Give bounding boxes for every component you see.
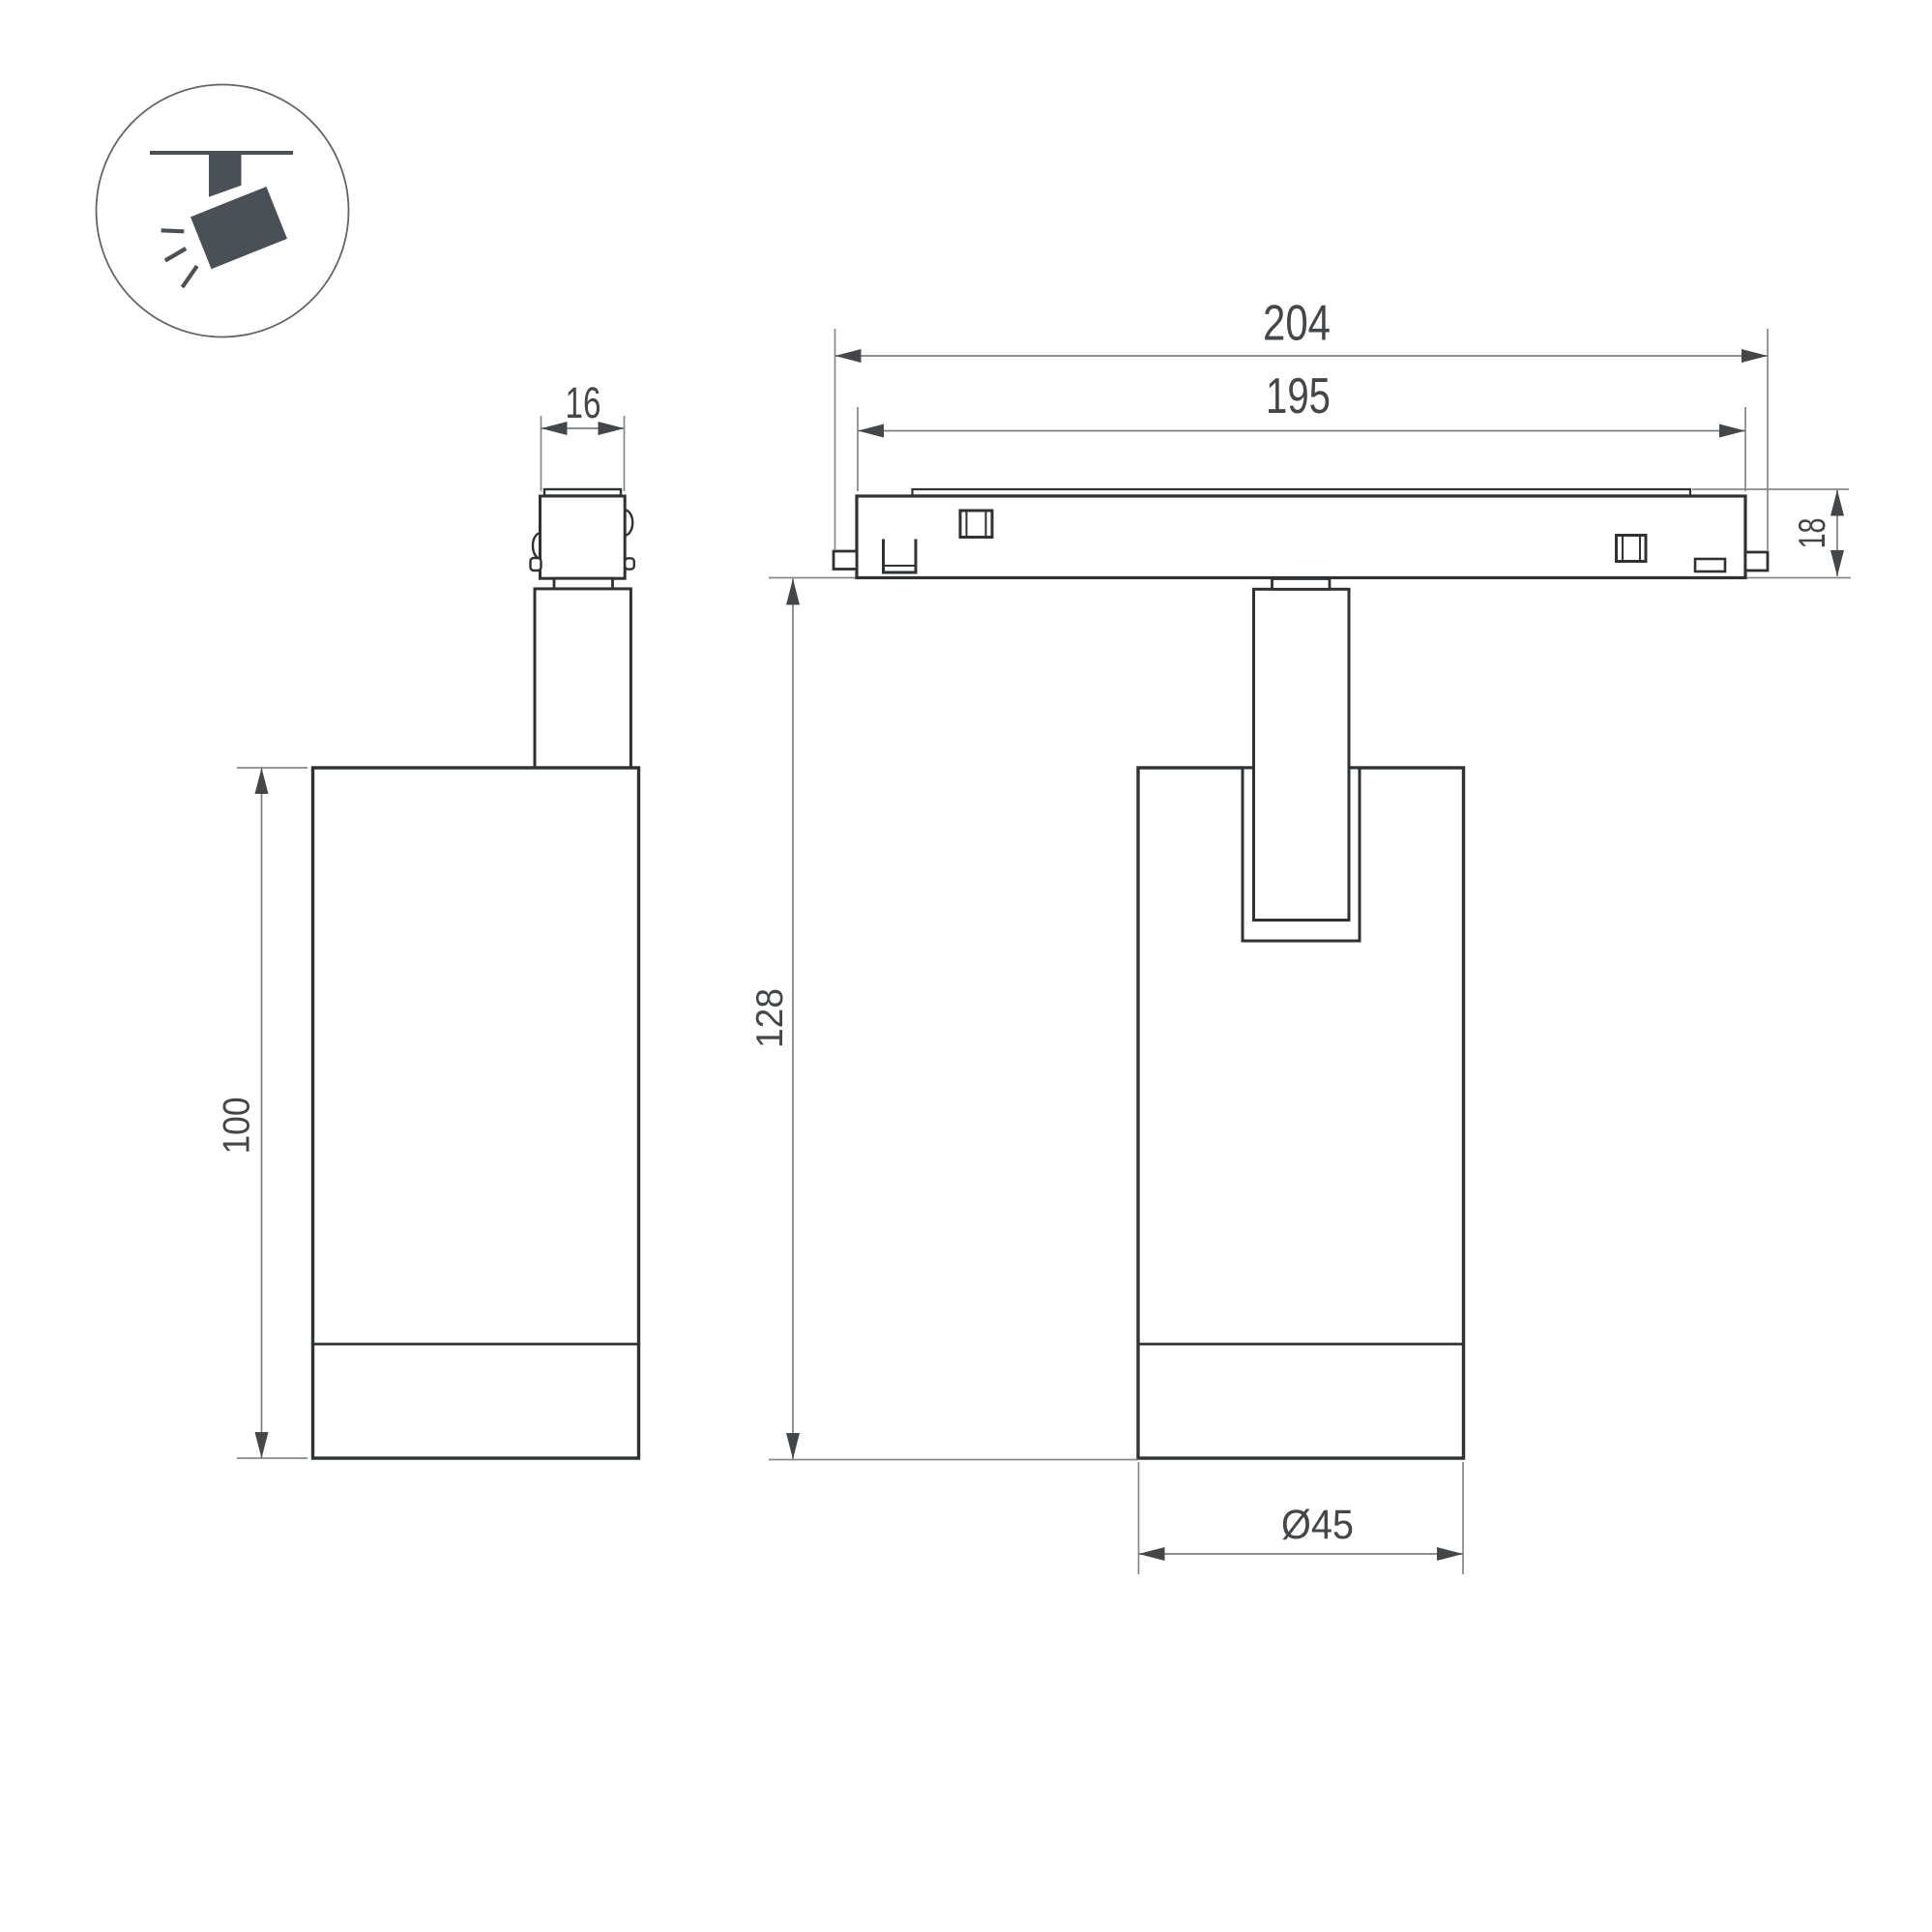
svg-text:195: 195 [1266, 368, 1331, 424]
svg-text:204: 204 [1263, 296, 1331, 352]
svg-text:18: 18 [1792, 518, 1833, 549]
svg-text:16: 16 [566, 378, 601, 427]
svg-text:100: 100 [217, 1098, 258, 1155]
svg-text:Ø45: Ø45 [1281, 1502, 1354, 1548]
svg-text:128: 128 [749, 988, 791, 1048]
